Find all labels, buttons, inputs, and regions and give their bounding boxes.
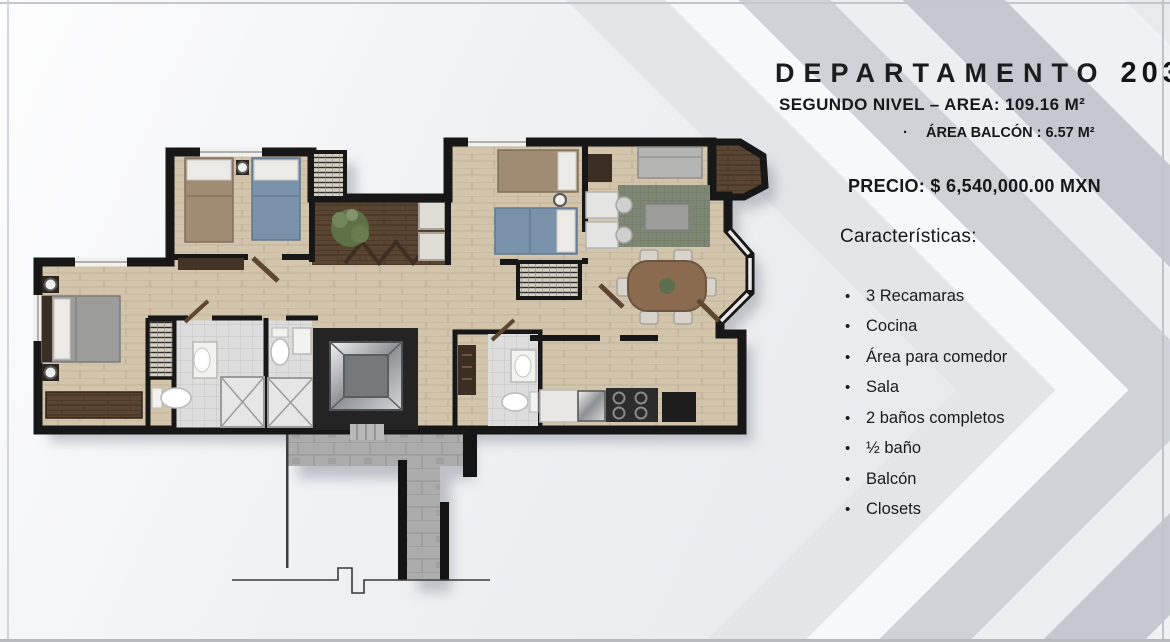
level-area-subtitle: SEGUNDO NIVEL – AREA: 109.16 M² [779, 95, 1085, 115]
list-item: •Balcón [845, 464, 1007, 495]
refrigerator [662, 392, 696, 422]
bullet-icon: • [845, 288, 866, 305]
list-item: •½ baño [845, 434, 1007, 465]
master-closet [148, 320, 174, 378]
list-item: •Área para comedor [845, 342, 1007, 373]
kitchen-sink [578, 391, 605, 421]
list-item: •Closets [845, 495, 1007, 526]
list-item: •3 Recamaras [845, 281, 1007, 312]
bullet-icon: • [845, 471, 866, 488]
list-item: •2 baños completos [845, 403, 1007, 434]
bullet-icon: • [845, 440, 866, 457]
list-item: •Sala [845, 373, 1007, 404]
bathrooms [148, 301, 318, 430]
price-label: PRECIO: $ 6,540,000.00 MXN [848, 176, 1101, 197]
plant-icon [331, 209, 369, 247]
title-text: DEPARTAMENTO [775, 58, 1107, 89]
bullet-icon: • [845, 410, 866, 427]
features-list: •3 Recamaras •Cocina •Área para comedor … [845, 281, 1007, 525]
balcony-area-text: ÁREA BALCÓN : 6.57 M² [926, 125, 1095, 141]
slide: DEPARTAMENTO 203 SEGUNDO NIVEL – AREA: 1… [0, 0, 1170, 642]
unit-number: 203 [1121, 57, 1170, 90]
bullet-icon: • [845, 318, 866, 335]
bullet-icon: • [845, 501, 866, 518]
stove [606, 388, 658, 422]
balcony [712, 142, 765, 197]
closet-bedroom-1 [312, 152, 345, 198]
elevator [313, 328, 418, 440]
hallway-console [178, 258, 244, 270]
bullet-icon: · [903, 124, 908, 141]
features-heading: Características: [840, 226, 977, 248]
terrace-deck [312, 198, 448, 265]
list-item: •Cocina [845, 312, 1007, 343]
page-title: DEPARTAMENTO 203 [775, 57, 1170, 90]
closet-bedroom-2 [518, 262, 580, 298]
balcony-area-note: · ÁREA BALCÓN : 6.57 M² [903, 124, 1095, 141]
bullet-icon: • [845, 349, 866, 366]
bullet-icon: • [845, 379, 866, 396]
